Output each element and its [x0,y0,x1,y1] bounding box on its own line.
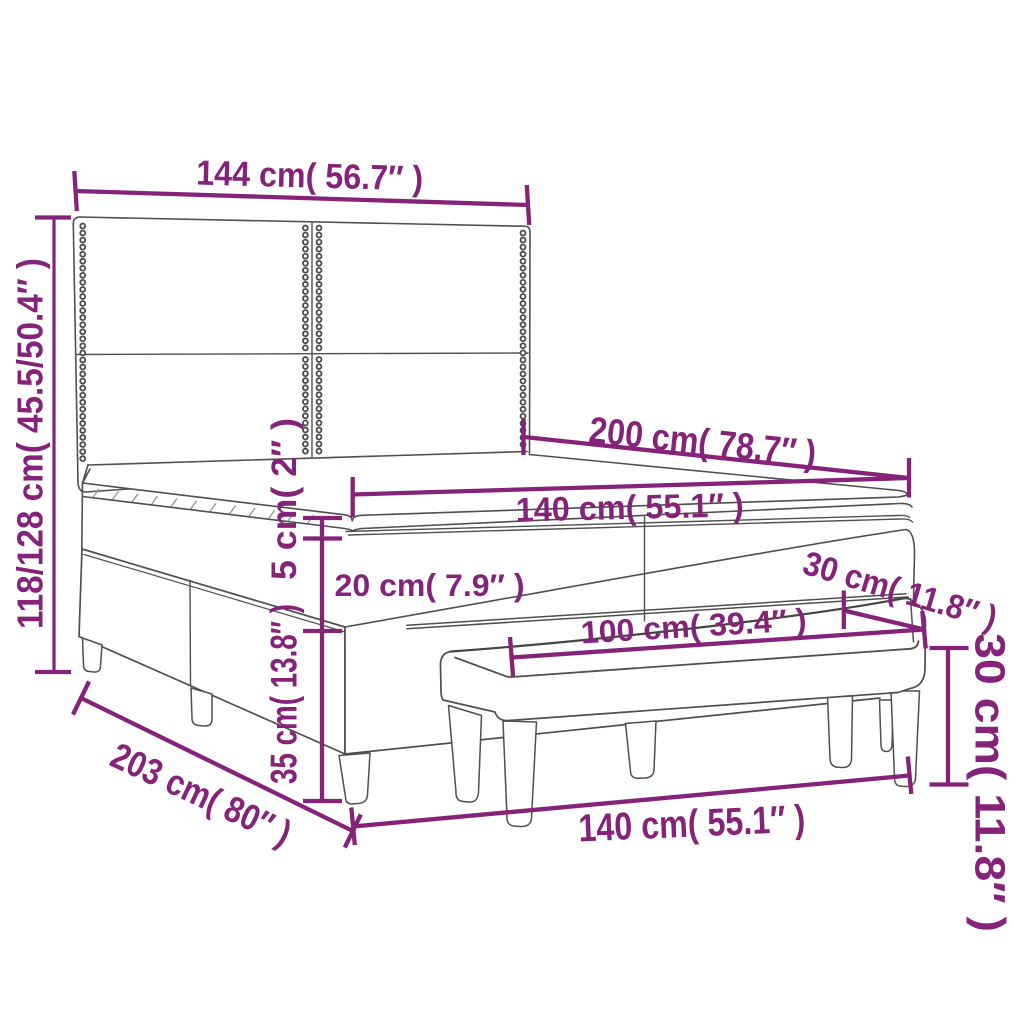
svg-text:30 cm( 11.8″ ): 30 cm( 11.8″ ) [966,633,1013,932]
svg-text:144 cm( 56.7″ ): 144 cm( 56.7″ ) [196,154,424,199]
svg-text:5 cm( 2″ ): 5 cm( 2″ ) [265,418,304,580]
svg-text:140 cm( 55.1″ ): 140 cm( 55.1″ ) [515,486,744,529]
svg-text:35 cm( 13.8″ ): 35 cm( 13.8″ ) [264,604,305,784]
svg-text:118/128 cm( 45.5/50.4″ ): 118/128 cm( 45.5/50.4″ ) [10,258,51,629]
svg-text:20 cm( 7.9″ ): 20 cm( 7.9″ ) [335,567,525,603]
